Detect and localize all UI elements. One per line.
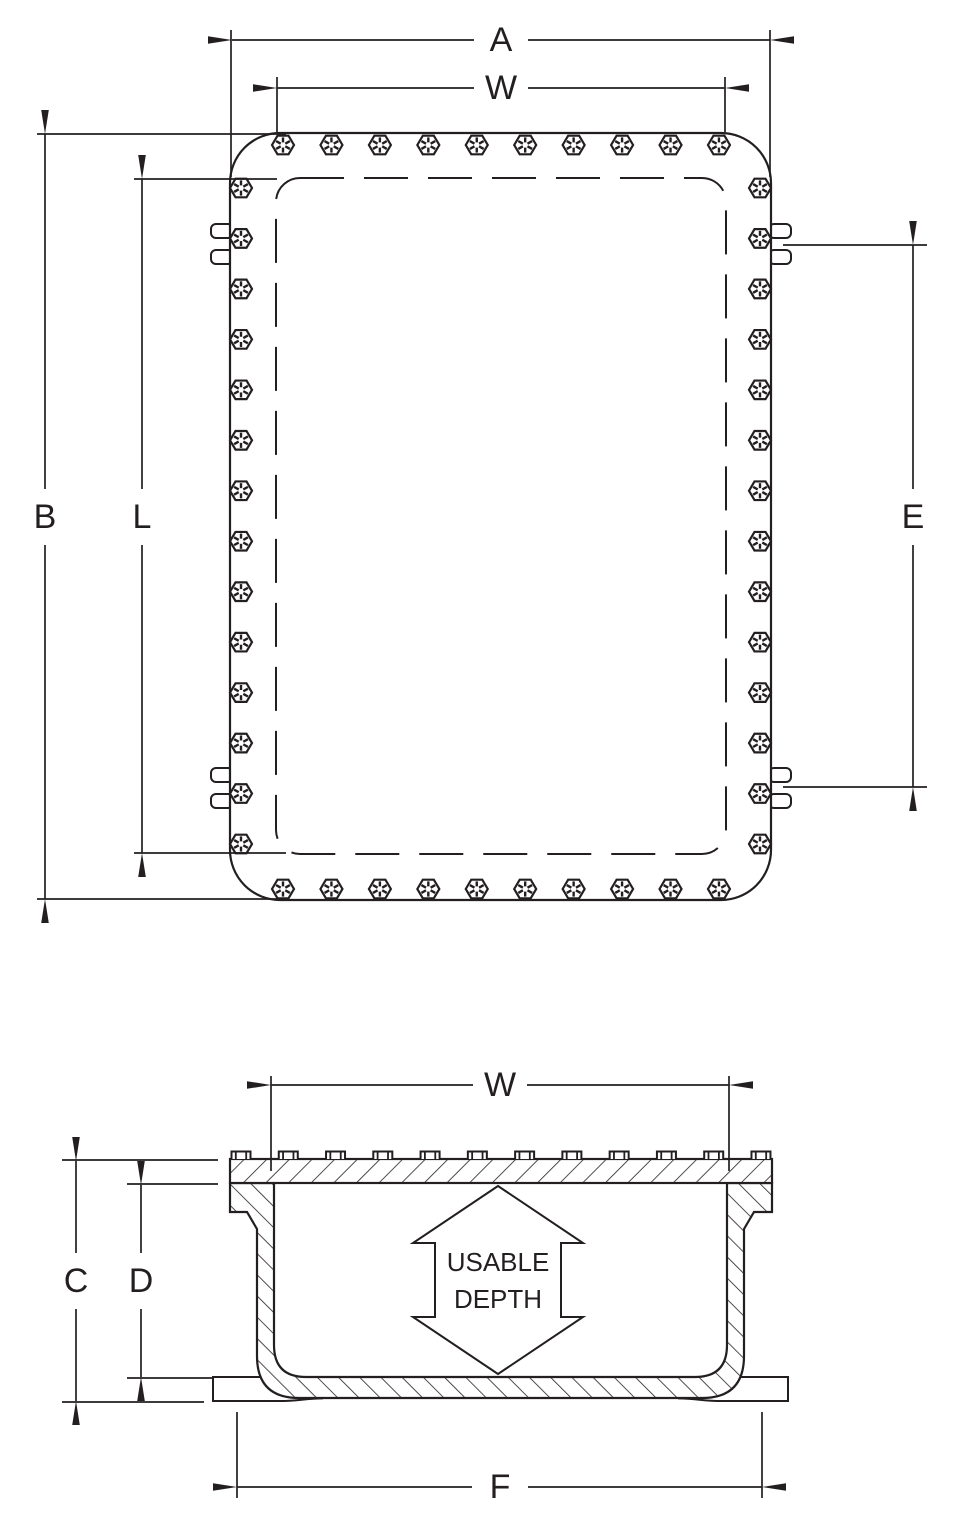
hex-bolt-icon <box>749 381 771 400</box>
hex-bolt-icon <box>749 734 771 753</box>
hex-bolt-icon <box>749 431 771 450</box>
lug-right-top-b <box>769 250 791 264</box>
cover-bolt-head-icon <box>326 1152 345 1160</box>
hex-bolt-icon <box>749 532 771 551</box>
hex-bolt-icon <box>230 431 252 450</box>
hex-bolt-icon <box>749 835 771 854</box>
hex-bolt-icon <box>272 880 294 899</box>
hex-bolt-icon <box>230 330 252 349</box>
hex-bolt-icon <box>466 880 488 899</box>
dim-label-f: F <box>490 1470 511 1504</box>
usable-depth-arrow <box>413 1186 583 1374</box>
hex-bolt-icon <box>466 136 488 155</box>
hex-bolt-icon <box>708 136 730 155</box>
hex-bolt-icon <box>230 734 252 753</box>
hex-bolt-icon <box>320 880 342 899</box>
cover-bolt-head-icon <box>562 1152 581 1160</box>
hex-bolt-icon <box>369 880 391 899</box>
hex-bolt-icon <box>230 280 252 299</box>
cover-bolt-head-icon <box>421 1152 440 1160</box>
dimension-lines-section <box>76 1085 762 1487</box>
cover-section <box>230 1159 772 1183</box>
hex-bolt-icon <box>230 179 252 198</box>
hex-bolt-icon <box>514 880 536 899</box>
enclosure-outline <box>230 133 771 900</box>
cover-bolt-head-icon <box>468 1152 487 1160</box>
extension-lines-section <box>62 1076 762 1498</box>
lug-right-top-a <box>769 224 791 238</box>
hex-bolt-icon <box>749 582 771 601</box>
usable-depth-text-line2: DEPTH <box>454 1286 542 1312</box>
dim-label-c: C <box>64 1264 89 1298</box>
hex-bolt-icon <box>563 880 585 899</box>
cover-bolt-head-icon <box>657 1152 676 1160</box>
hex-bolt-icon <box>749 633 771 652</box>
hex-bolt-icon <box>230 683 252 702</box>
lug-right-bottom-a <box>769 768 791 782</box>
hex-bolt-icon <box>749 330 771 349</box>
hex-bolt-icon <box>563 136 585 155</box>
usable-depth-text-line1: USABLE <box>447 1249 550 1275</box>
hex-bolt-icon <box>749 179 771 198</box>
hex-bolt-icon <box>749 280 771 299</box>
hex-bolt-icon <box>611 880 633 899</box>
dim-label-a: A <box>490 23 513 57</box>
hex-bolt-icon <box>708 880 730 899</box>
hex-bolt-icon <box>230 532 252 551</box>
hex-bolt-icon <box>369 136 391 155</box>
dim-label-d: D <box>129 1264 154 1298</box>
hex-bolt-icon <box>749 229 771 248</box>
hex-bolt-icon <box>320 136 342 155</box>
hex-bolt-icon <box>417 136 439 155</box>
dim-label-e: E <box>902 500 925 534</box>
hex-bolt-icon <box>230 835 252 854</box>
section-view <box>62 1076 788 1498</box>
cover-bolt-head-icon <box>704 1152 723 1160</box>
cover-bolt-head-icon <box>751 1152 770 1160</box>
hex-bolt-icon <box>749 481 771 500</box>
cover-bolt-head-icon <box>232 1152 251 1160</box>
hex-bolt-icon <box>417 880 439 899</box>
cover-bolt-head-icon <box>373 1152 392 1160</box>
hex-bolt-icon <box>230 381 252 400</box>
hex-bolt-icon <box>611 136 633 155</box>
cover-bolt-head-icon <box>515 1152 534 1160</box>
hex-bolt-icon <box>272 136 294 155</box>
hex-bolt-icon <box>660 880 682 899</box>
hex-bolt-icon <box>660 136 682 155</box>
hex-bolt-icon <box>230 229 252 248</box>
dim-label-l: L <box>133 500 152 534</box>
hex-bolt-icon <box>230 481 252 500</box>
hex-bolt-icon <box>749 784 771 803</box>
hex-bolt-icon <box>230 582 252 601</box>
lug-right-bottom-b <box>769 794 791 808</box>
cover-bolt-head-icon <box>610 1152 629 1160</box>
cover-bolt-head-icon <box>279 1152 298 1160</box>
hex-bolt-icon <box>749 683 771 702</box>
dim-label-b: B <box>34 500 57 534</box>
hex-bolt-icon <box>230 784 252 803</box>
hex-bolt-icon <box>230 633 252 652</box>
hex-bolt-icon <box>514 136 536 155</box>
plan-view <box>37 30 927 900</box>
dim-label-w-section: W <box>484 1068 516 1102</box>
dim-label-w-plan: W <box>485 71 517 105</box>
cover-bolts-section <box>232 1152 771 1160</box>
technical-drawing: A W B L E W C D F USABLE DEPTH <box>0 0 954 1518</box>
